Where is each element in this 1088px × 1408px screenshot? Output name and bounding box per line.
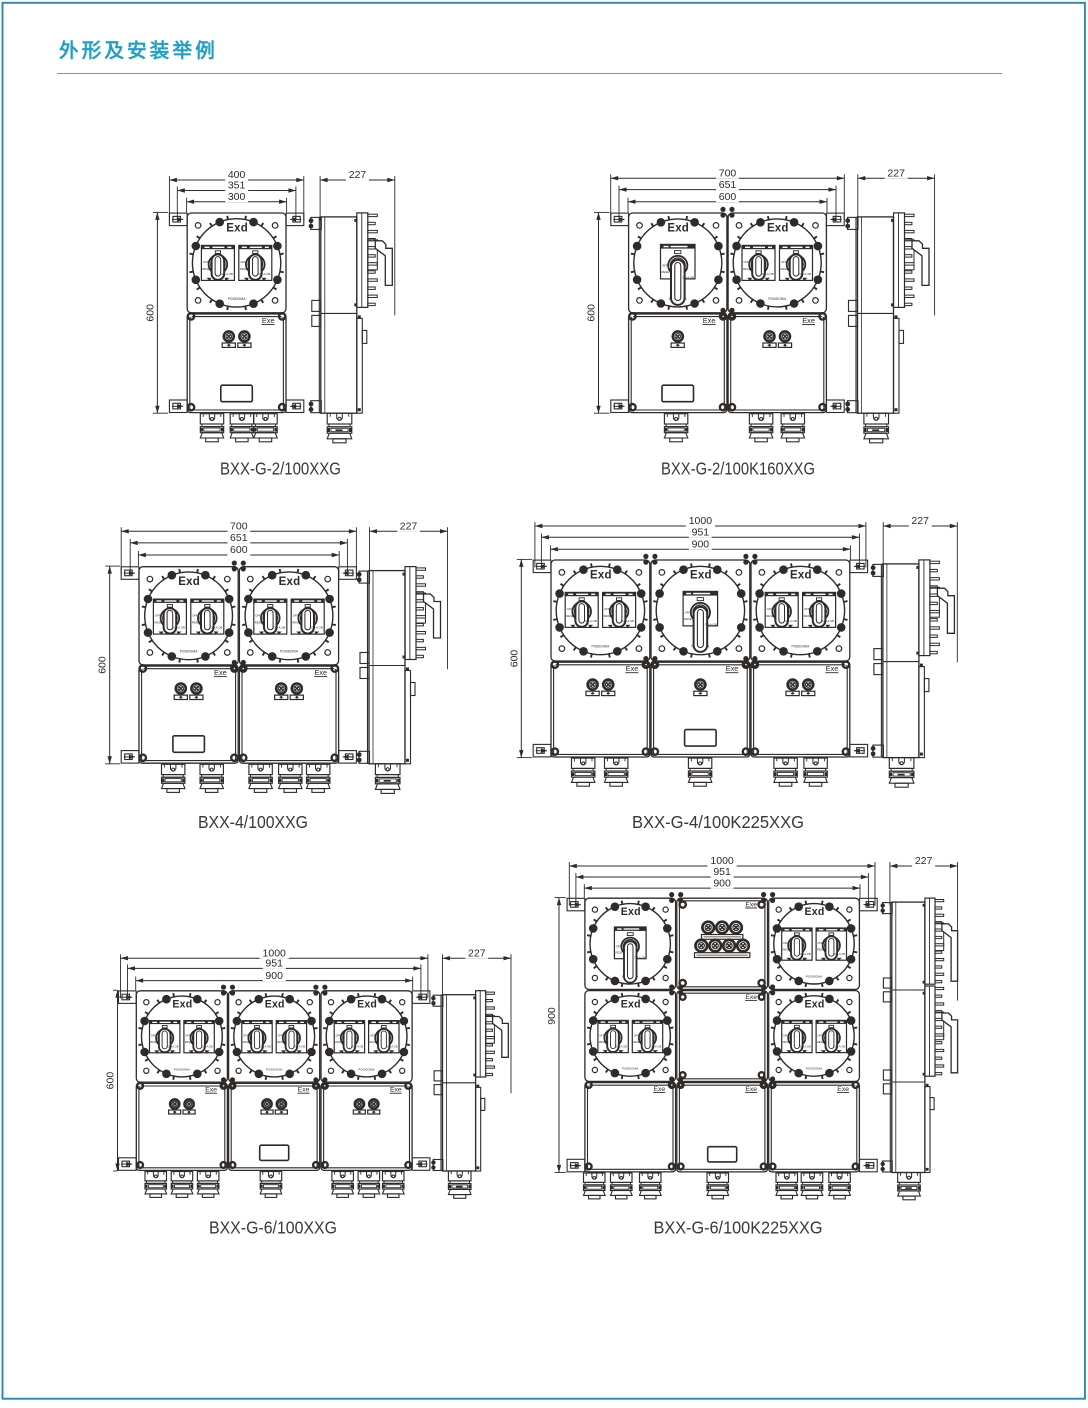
- svg-text:OFF: OFF: [370, 1034, 376, 1038]
- svg-text:RESET: RESET: [185, 1040, 194, 1044]
- svg-text:OFF: OFF: [783, 1034, 789, 1038]
- svg-text:RESET: RESET: [154, 621, 164, 625]
- svg-text:ON-A.OB: ON-A.OB: [273, 626, 285, 630]
- svg-text:OFF: OFF: [818, 1034, 824, 1038]
- svg-text:OFF: OFF: [255, 614, 261, 618]
- svg-text:900: 900: [546, 1007, 558, 1025]
- svg-text:Exd: Exd: [690, 569, 712, 581]
- svg-text:600: 600: [586, 304, 598, 322]
- svg-text:Exd: Exd: [357, 999, 377, 1011]
- svg-text:227: 227: [911, 515, 929, 527]
- svg-text:Exd: Exd: [790, 569, 812, 581]
- svg-text:POSIDONIA: POSIDONIA: [266, 1067, 282, 1071]
- svg-text:RESET: RESET: [783, 1040, 792, 1044]
- svg-text:ON-A.OB: ON-A.OB: [585, 619, 597, 623]
- svg-text:Exd: Exd: [621, 906, 641, 918]
- svg-text:OFF: OFF: [604, 607, 610, 611]
- svg-text:OFF: OFF: [599, 1034, 605, 1038]
- svg-text:Exd: Exd: [767, 222, 789, 234]
- svg-text:600: 600: [719, 191, 737, 203]
- svg-text:227: 227: [400, 521, 418, 533]
- svg-text:ON-A.OB: ON-A.OB: [294, 1045, 305, 1049]
- svg-text:Exe: Exe: [205, 1087, 217, 1094]
- svg-text:RESET: RESET: [817, 948, 826, 952]
- svg-text:ON-A.OB: ON-A.OB: [616, 1045, 627, 1049]
- svg-text:ON-A.OB: ON-A.OB: [800, 1045, 811, 1049]
- svg-text:700: 700: [719, 167, 737, 179]
- svg-text:POSIDONIA: POSIDONIA: [280, 650, 299, 654]
- svg-text:Exe: Exe: [802, 316, 815, 325]
- svg-text:RESET: RESET: [599, 1040, 608, 1044]
- svg-text:BXX-G-4/100K225XXG: BXX-G-4/100K225XXG: [632, 812, 804, 832]
- svg-text:RESET: RESET: [566, 614, 576, 618]
- svg-text:RESET: RESET: [783, 948, 792, 952]
- svg-text:OFF: OFF: [804, 607, 810, 611]
- svg-text:OFF: OFF: [767, 607, 773, 611]
- svg-text:ON-A.OB: ON-A.OB: [634, 955, 645, 959]
- svg-text:ON-A.OB: ON-A.OB: [785, 619, 797, 623]
- svg-text:Exe: Exe: [214, 668, 227, 677]
- svg-text:Exe: Exe: [390, 1087, 402, 1094]
- svg-text:300: 300: [228, 191, 246, 203]
- svg-text:BXX-G-2/100XXG: BXX-G-2/100XXG: [220, 459, 341, 479]
- svg-text:Exd: Exd: [265, 999, 285, 1011]
- svg-text:651: 651: [719, 179, 737, 191]
- svg-text:RESET: RESET: [335, 1040, 344, 1044]
- svg-text:Exe: Exe: [745, 1086, 757, 1093]
- svg-text:BXX-G-2/100K160XXG: BXX-G-2/100K160XXG: [661, 459, 815, 479]
- svg-text:ON-A.OB: ON-A.OB: [311, 626, 323, 630]
- svg-text:OFF: OFF: [278, 1034, 284, 1038]
- svg-text:OFF: OFF: [567, 607, 573, 611]
- svg-text:OFF: OFF: [243, 1034, 249, 1038]
- svg-text:OFF: OFF: [293, 614, 299, 618]
- svg-text:POSIDONIA: POSIDONIA: [792, 645, 811, 649]
- svg-text:ON-A.OB: ON-A.OB: [352, 1045, 363, 1049]
- svg-text:ON-A.OB: ON-A.OB: [168, 1045, 179, 1049]
- svg-text:Exd: Exd: [667, 222, 689, 234]
- svg-text:RESET: RESET: [202, 267, 212, 271]
- svg-text:RESET: RESET: [662, 270, 672, 274]
- svg-text:OFF: OFF: [616, 944, 622, 948]
- svg-text:POSIDONIA: POSIDONIA: [358, 1067, 374, 1071]
- svg-text:RESET: RESET: [370, 1040, 379, 1044]
- svg-text:Exd: Exd: [804, 999, 824, 1011]
- svg-text:Exe: Exe: [314, 668, 327, 677]
- svg-text:RESET: RESET: [633, 1040, 642, 1044]
- svg-text:POSIDONIA: POSIDONIA: [622, 1067, 638, 1071]
- svg-text:RESET: RESET: [781, 267, 791, 271]
- svg-text:OFF: OFF: [203, 260, 209, 264]
- svg-text:RESET: RESET: [615, 950, 624, 954]
- svg-text:951: 951: [692, 527, 710, 539]
- svg-text:Exe: Exe: [703, 316, 716, 325]
- svg-text:700: 700: [230, 521, 248, 533]
- svg-text:ON-A.OB: ON-A.OB: [799, 272, 811, 276]
- svg-text:1000: 1000: [689, 515, 713, 527]
- svg-text:351: 351: [228, 180, 246, 192]
- svg-text:Exe: Exe: [653, 1086, 665, 1093]
- svg-text:Exe: Exe: [298, 1087, 310, 1094]
- svg-text:Exd: Exd: [279, 576, 301, 588]
- svg-text:OFF: OFF: [151, 1034, 157, 1038]
- svg-text:Exe: Exe: [745, 994, 757, 1001]
- svg-text:RESET: RESET: [743, 267, 753, 271]
- svg-text:BXX-G-6/100XXG: BXX-G-6/100XXG: [209, 1218, 337, 1238]
- svg-text:ON-A.OB: ON-A.OB: [260, 1045, 271, 1049]
- svg-text:Exd: Exd: [226, 222, 248, 234]
- svg-text:POSIDONIA: POSIDONIA: [768, 297, 787, 301]
- svg-text:RESET: RESET: [277, 1040, 286, 1044]
- svg-text:OFF: OFF: [685, 610, 691, 614]
- svg-text:RESET: RESET: [243, 1040, 252, 1044]
- svg-text:ON-A.OB: ON-A.OB: [221, 272, 233, 276]
- svg-text:ON-A.OB: ON-A.OB: [258, 272, 270, 276]
- svg-text:ON-A.OB: ON-A.OB: [173, 626, 185, 630]
- svg-text:OFF: OFF: [744, 260, 750, 264]
- svg-text:ON-A.OB: ON-A.OB: [210, 626, 222, 630]
- svg-text:600: 600: [144, 304, 156, 322]
- svg-text:Exe: Exe: [726, 664, 739, 673]
- svg-text:OFF: OFF: [185, 1034, 191, 1038]
- svg-text:900: 900: [265, 970, 283, 982]
- svg-text:Exe: Exe: [262, 316, 275, 325]
- svg-text:RESET: RESET: [684, 617, 694, 621]
- svg-text:ON-A.OB: ON-A.OB: [682, 275, 694, 279]
- svg-text:600: 600: [230, 544, 248, 556]
- svg-text:Exd: Exd: [621, 999, 641, 1011]
- svg-text:RESET: RESET: [192, 621, 202, 625]
- svg-text:600: 600: [97, 656, 109, 674]
- svg-text:Exe: Exe: [826, 664, 839, 673]
- svg-text:POSIDONIA: POSIDONIA: [228, 297, 247, 301]
- svg-text:ON-A.OB: ON-A.OB: [834, 952, 845, 956]
- svg-text:227: 227: [349, 169, 367, 181]
- svg-text:OFF: OFF: [192, 614, 198, 618]
- svg-text:900: 900: [713, 877, 731, 889]
- svg-text:OFF: OFF: [662, 263, 668, 267]
- svg-text:ON-A.OB: ON-A.OB: [705, 622, 717, 626]
- svg-text:POSIDONIA: POSIDONIA: [592, 645, 611, 649]
- svg-text:Exe: Exe: [837, 1086, 849, 1093]
- svg-text:POSIDONIA: POSIDONIA: [806, 1067, 822, 1071]
- svg-text:OFF: OFF: [781, 260, 787, 264]
- svg-text:Exd: Exd: [172, 999, 192, 1011]
- svg-text:RESET: RESET: [292, 621, 302, 625]
- svg-text:900: 900: [692, 538, 710, 550]
- svg-text:600: 600: [508, 650, 520, 668]
- svg-text:227: 227: [915, 855, 933, 867]
- svg-text:POSIDONIA: POSIDONIA: [174, 1067, 190, 1071]
- svg-text:227: 227: [887, 167, 905, 179]
- svg-text:951: 951: [265, 958, 283, 970]
- svg-text:600: 600: [105, 1072, 117, 1090]
- svg-text:RESET: RESET: [240, 267, 250, 271]
- svg-text:227: 227: [468, 947, 486, 959]
- svg-text:OFF: OFF: [783, 941, 789, 945]
- svg-text:ON-A.OB: ON-A.OB: [762, 272, 774, 276]
- svg-text:ON-A.OB: ON-A.OB: [834, 1045, 845, 1049]
- svg-text:POSIDONIA: POSIDONIA: [180, 650, 199, 654]
- svg-text:OFF: OFF: [240, 260, 246, 264]
- svg-text:Exd: Exd: [804, 906, 824, 918]
- svg-text:RESET: RESET: [150, 1040, 159, 1044]
- svg-text:Exe: Exe: [745, 902, 757, 909]
- svg-text:RESET: RESET: [604, 614, 614, 618]
- svg-text:BXX-G-6/100K225XXG: BXX-G-6/100K225XXG: [654, 1218, 823, 1238]
- svg-text:OFF: OFF: [634, 1034, 640, 1038]
- svg-text:ON-A.OB: ON-A.OB: [822, 619, 834, 623]
- svg-text:RESET: RESET: [804, 614, 814, 618]
- svg-text:Exe: Exe: [626, 664, 639, 673]
- svg-text:POSIDONIA: POSIDONIA: [806, 975, 822, 979]
- svg-text:ON-A.OB: ON-A.OB: [622, 619, 634, 623]
- svg-text:外形及安装举例: 外形及安装举例: [59, 39, 218, 62]
- svg-text:RESET: RESET: [766, 614, 776, 618]
- svg-text:ON-A.OB: ON-A.OB: [387, 1045, 398, 1049]
- svg-text:BXX-4/100XXG: BXX-4/100XXG: [198, 812, 308, 832]
- svg-text:ON-A.OB: ON-A.OB: [202, 1045, 213, 1049]
- svg-text:ON-A.OB: ON-A.OB: [800, 952, 811, 956]
- svg-text:RESET: RESET: [817, 1040, 826, 1044]
- svg-text:ON-A.OB: ON-A.OB: [650, 1045, 661, 1049]
- svg-text:Exd: Exd: [590, 569, 612, 581]
- svg-text:Exd: Exd: [178, 576, 200, 588]
- svg-text:OFF: OFF: [336, 1034, 342, 1038]
- svg-text:651: 651: [230, 532, 248, 544]
- svg-text:RESET: RESET: [255, 621, 265, 625]
- svg-text:OFF: OFF: [818, 941, 824, 945]
- svg-text:OFF: OFF: [155, 614, 161, 618]
